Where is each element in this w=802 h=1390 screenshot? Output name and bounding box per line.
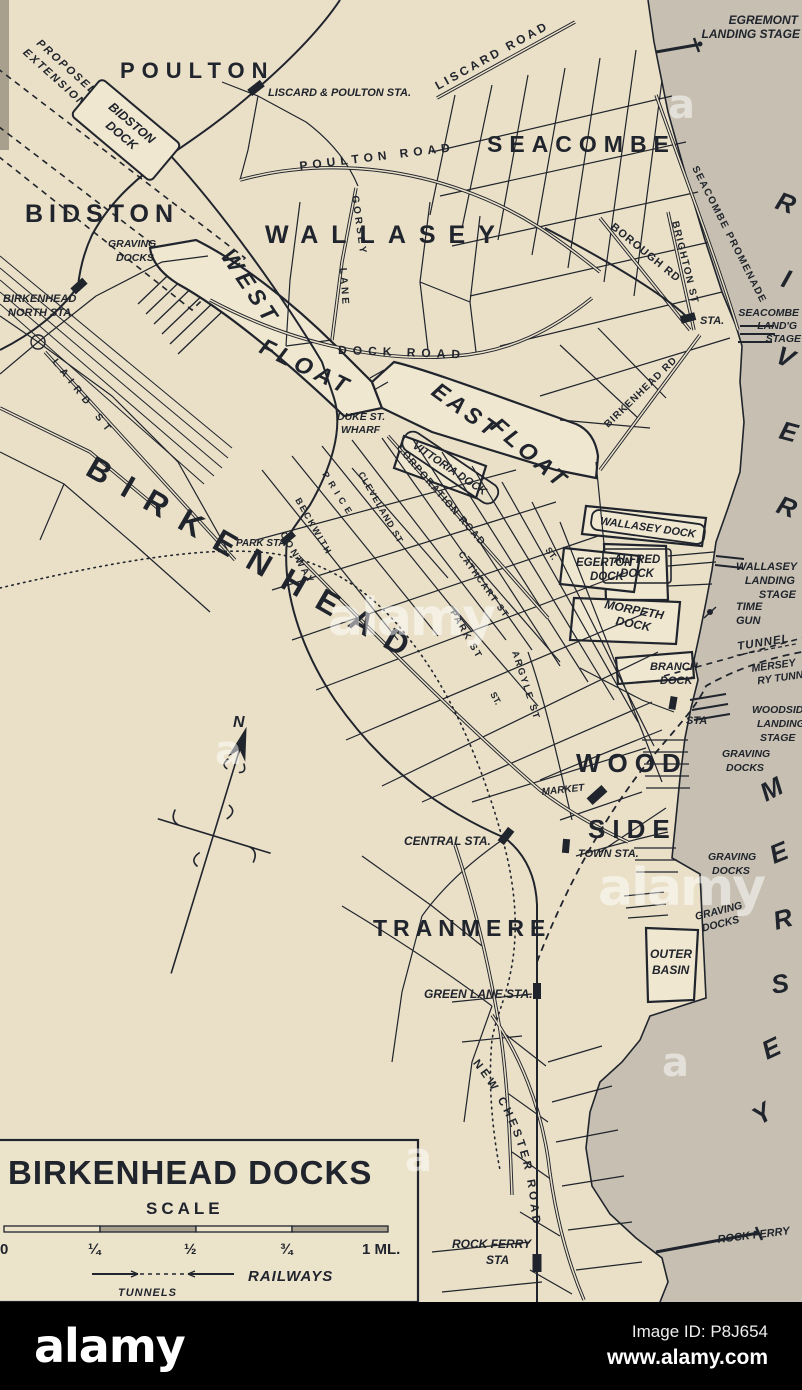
label-tranmere: TRANMERE (373, 915, 551, 941)
label-liscard-poulton-sta: LISCARD & POULTON STA. (268, 87, 411, 99)
label-woodside-stage: WOODSIDE LANDING STAGE (752, 704, 802, 744)
svg-text:¾: ¾ (280, 1241, 294, 1258)
scale-bar (4, 1226, 388, 1232)
legend-scale-label: SCALE (146, 1199, 224, 1218)
town-station-block (562, 839, 570, 854)
scan-shadow (0, 0, 9, 150)
alamy-logo: alamy (34, 1319, 185, 1373)
label-green-lane-sta: GREEN LANE STA. (424, 987, 532, 1001)
rock-ferry-station-block (533, 1254, 542, 1272)
label-seacombe: SEACOMBE (487, 131, 676, 157)
label-seacombe-sta: STA. (700, 315, 724, 327)
svg-text:½: ½ (184, 1241, 197, 1258)
label-wallasey: WALLASEY (265, 221, 508, 249)
label-town-sta: TOWN STA. (578, 848, 639, 860)
legend-tunnels-label: TUNNELS (118, 1287, 177, 1299)
label-side: SIDE (588, 814, 677, 844)
svg-text:¼: ¼ (88, 1241, 102, 1258)
label-woodside-sta: STA (686, 715, 707, 727)
green-lane-station-block (533, 983, 541, 999)
egremont-pier-head (698, 42, 703, 47)
legend: BIRKENHEAD DOCKS SCALE 0 ¼ ½ ¾ 1 ML. RAI… (0, 1140, 418, 1302)
alamy-url: www.alamy.com (607, 1346, 768, 1370)
label-central-sta: CENTRAL STA. (404, 834, 491, 848)
svg-text:1 ML.: 1 ML. (362, 1241, 400, 1258)
compass-n-label: N (233, 714, 245, 731)
legend-title: BIRKENHEAD DOCKS (8, 1154, 372, 1191)
legend-railways-label: RAILWAYS (248, 1268, 333, 1285)
svg-text:0: 0 (0, 1241, 8, 1258)
label-poulton: POULTON (120, 58, 275, 83)
label-duke-st-wharf: DUKE ST.WHARF (337, 411, 385, 436)
map-svg: N POULTON BIDSTON WALLASEY SEACOMBE TRAN… (0, 0, 802, 1302)
label-wood: WOOD (576, 748, 688, 778)
footer-bar: alamy Image ID: P8J654 www.alamy.com (0, 1302, 802, 1390)
label-bidston: BIDSTON (25, 200, 179, 228)
map-page: N POULTON BIDSTON WALLASEY SEACOMBE TRAN… (0, 0, 802, 1390)
image-id: Image ID: P8J654 (607, 1322, 768, 1342)
